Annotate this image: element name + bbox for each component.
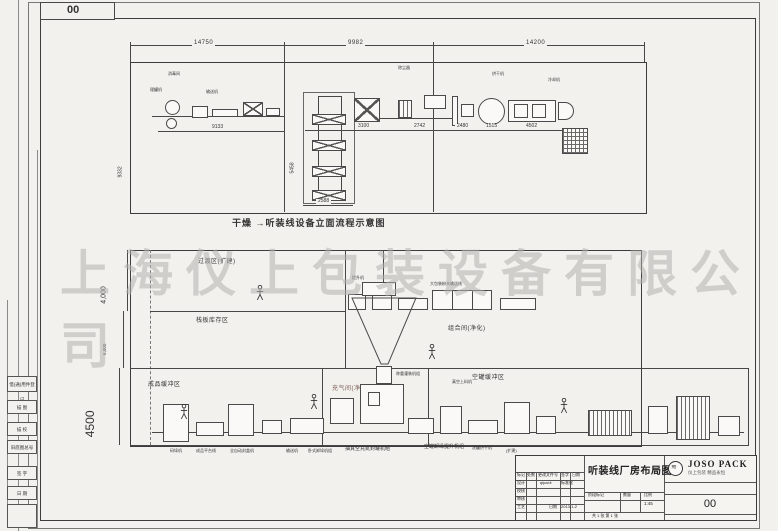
margin-label-check: 描 校 (7, 422, 37, 436)
section-divider (433, 62, 434, 212)
section-divider (284, 62, 285, 212)
machine-block (290, 418, 324, 434)
machine-inner (514, 104, 528, 118)
dim-1515: 1515 (484, 124, 499, 130)
tb-scale-label: 比例 (644, 493, 652, 497)
machine-block (500, 298, 536, 310)
revision-number: 00 (67, 4, 79, 16)
tb-row-check: 校核 (517, 489, 525, 493)
dim-tick (433, 42, 434, 62)
wall-line (748, 368, 749, 445)
machine-depalletizer (676, 396, 710, 440)
tb-std-label: 标准化 (561, 481, 573, 485)
tower-module (312, 114, 346, 125)
machine-block (228, 404, 254, 436)
machine-block (330, 398, 354, 424)
wall-line (150, 311, 345, 312)
machine-block (408, 418, 434, 434)
dim-4000: 4,000 (100, 286, 108, 304)
label-vacuum-feeder: 真空上料机 (452, 380, 472, 384)
machine-conveyor-long (432, 290, 492, 310)
label-horiz-depal: 卧式卸垛机组 (308, 449, 332, 453)
dim-2742: 2742 (412, 124, 427, 130)
conveyor-line (380, 118, 452, 119)
hopper-cone (348, 294, 420, 370)
dim-2480: 2480 (455, 124, 470, 130)
machine-filler-body (360, 384, 404, 424)
dim-line (303, 205, 353, 206)
brand-name: JOSO PACK (688, 460, 748, 470)
brand-slogan: 仪上包装 精品永恒 (688, 471, 725, 476)
machine-block (192, 106, 208, 118)
drawing-title: 听装线厂房布局图 (588, 466, 662, 477)
machine-block (262, 420, 282, 434)
tb-hdr-date: 日期 (572, 473, 580, 477)
tb-hdr-sign: 签字 (561, 473, 569, 477)
dim-line-v (123, 311, 124, 368)
margin-label-reuse: 借(通)用件登记 (7, 376, 37, 392)
zone-finished: 成品缓冲区 (148, 382, 181, 389)
label-filler: 称重灌装机组 (396, 372, 420, 376)
top-drawing-caption: 干燥 →听装线设备立面流程示意图 (232, 219, 386, 229)
label-sterilize: 消毒间 (168, 72, 180, 76)
machine-block (212, 109, 238, 117)
label-platform: 成品平台线 (196, 449, 216, 453)
label-palletizer: 码垛机 (170, 449, 182, 453)
label-dryer: 烘干机 (492, 72, 504, 76)
label-conveyor: 输送机 (206, 90, 218, 94)
tb-hdr-mark: 标记 (517, 473, 525, 477)
margin-label-trace: 描 图 (7, 400, 37, 414)
tb-line (664, 494, 756, 495)
wall-line (345, 250, 346, 368)
hatched-grid (562, 128, 588, 154)
dim-tick (130, 42, 131, 62)
tower-module (312, 140, 346, 151)
label-can-unscrambler: 理罐机 (150, 88, 162, 92)
machine-block (718, 416, 740, 436)
tb-row-audit: 审核 (517, 497, 525, 501)
margin-box-empty (7, 504, 37, 528)
tb-row-design: 设计 (517, 481, 525, 485)
dim-6000: 6,000 (103, 344, 108, 355)
zone-transition: 过渡区(扩建) (198, 259, 236, 266)
dim-5458: 5458 (291, 162, 297, 173)
machine-block (648, 406, 668, 434)
tb-row-process: 工艺 (517, 505, 525, 509)
joso-pack-logo-icon: ≋ (668, 461, 683, 476)
machine-drum (478, 98, 505, 125)
tb-scale-value: 1:45 (644, 502, 653, 507)
machine-block (536, 416, 556, 434)
machine-block (461, 104, 474, 117)
dim-4500: 4500 (84, 410, 97, 437)
title-block: 标记 处数 更改文件号 签字 日期 设计 qipack 标准化 校核 审核 工艺… (515, 455, 757, 521)
dim-tick (644, 42, 645, 62)
machine-block (196, 422, 224, 436)
tb-date-label: 日期 (549, 505, 557, 509)
label-can-depal: 空罐卸垛提升机组 (424, 445, 464, 451)
machine-duster (398, 100, 412, 118)
tb-hdr-count: 处数 (527, 473, 535, 477)
zone-combination: 组合间(净化) (448, 326, 486, 333)
pipe-line (383, 250, 384, 282)
machine-block (504, 402, 530, 434)
tb-date-value: 2013-1-2 (561, 505, 577, 509)
margin-line (37, 150, 38, 528)
tb-line (536, 472, 537, 520)
machine-block (266, 108, 280, 116)
dim-9332: 9332 (119, 166, 125, 177)
worker-figure (560, 398, 568, 414)
dim-line-v (119, 368, 120, 445)
worker-figure (256, 285, 264, 301)
worker-figure (310, 394, 318, 410)
zone-pallet: 栈板库存区 (196, 318, 229, 325)
tower-module (312, 166, 346, 177)
tb-line (664, 482, 756, 483)
drawing-number: 00 (664, 498, 756, 510)
machine-valve (354, 98, 380, 122)
machine-inner (532, 104, 546, 118)
zone-empty-can: 空罐缓冲区 (472, 375, 505, 382)
tb-line (620, 492, 621, 512)
dim-14750: 14750 (192, 40, 215, 47)
dim-2588: 2588 (316, 199, 331, 205)
machine-rotary (165, 100, 180, 115)
dim-3100: 3100 (356, 124, 371, 130)
label-cooler: 冷却机 (548, 78, 560, 82)
wall-line (130, 368, 748, 369)
tb-stage-label: 阶段标记 (588, 493, 604, 497)
margin-label-sign: 签 字 (7, 466, 37, 480)
dim-line-v (127, 250, 128, 311)
label-duster: 除尘器 (398, 66, 410, 70)
label-elevator: 提升机 (352, 276, 364, 280)
label-can-washer: 洗罐烘干机 (472, 446, 492, 450)
machine-block (468, 420, 498, 434)
label-capper: 全自动封盖机 (230, 449, 254, 453)
drawing-sheet: 上海仪上包装设备有限公司 00 借(通)用件登记 描 图 描 校 旧底图总号 签… (0, 0, 778, 531)
machine-divider (472, 290, 473, 310)
label-powder-conveyor: 大包装粉末输送线 (430, 282, 462, 286)
machine-flange (452, 96, 458, 126)
dim-9133: 9133 (210, 125, 225, 131)
machine-block (424, 95, 446, 109)
tb-line (664, 514, 756, 515)
tb-line (640, 492, 641, 512)
dim-14200: 14200 (524, 40, 547, 47)
machine-block (440, 406, 462, 434)
dim-line (158, 131, 284, 132)
machine-rotary (166, 118, 177, 129)
tb-line (584, 456, 585, 520)
label-conveyor2: 输送机 (286, 449, 298, 453)
tb-line (526, 472, 527, 520)
dim-9982: 9982 (346, 40, 365, 47)
margin-label-oldno: 旧底图总号 (7, 440, 37, 454)
tb-hdr-docno: 更改文件号 (538, 473, 558, 477)
tb-signature: qipack (540, 481, 552, 485)
revision-box: 00 (40, 2, 115, 20)
tb-qty-label: 数量 (623, 493, 631, 497)
machine-divider (452, 290, 453, 310)
machine-inner (368, 392, 380, 406)
dim-line (305, 130, 585, 131)
dim-tick (284, 42, 285, 62)
worker-figure (180, 404, 188, 420)
machine-block (243, 102, 263, 116)
wall-dashed (150, 250, 151, 445)
margin-label-date: 日 期 (7, 486, 37, 500)
dim-4502: 4502 (524, 124, 539, 130)
tb-sheets: 共 1 张 第 1 张 (592, 514, 618, 518)
worker-figure (428, 344, 436, 360)
label-expansion: (扩建) (506, 449, 517, 453)
machine-washer (588, 410, 632, 436)
label-vacuum-seamer: 抽真空充氮封罐机组 (345, 447, 390, 453)
